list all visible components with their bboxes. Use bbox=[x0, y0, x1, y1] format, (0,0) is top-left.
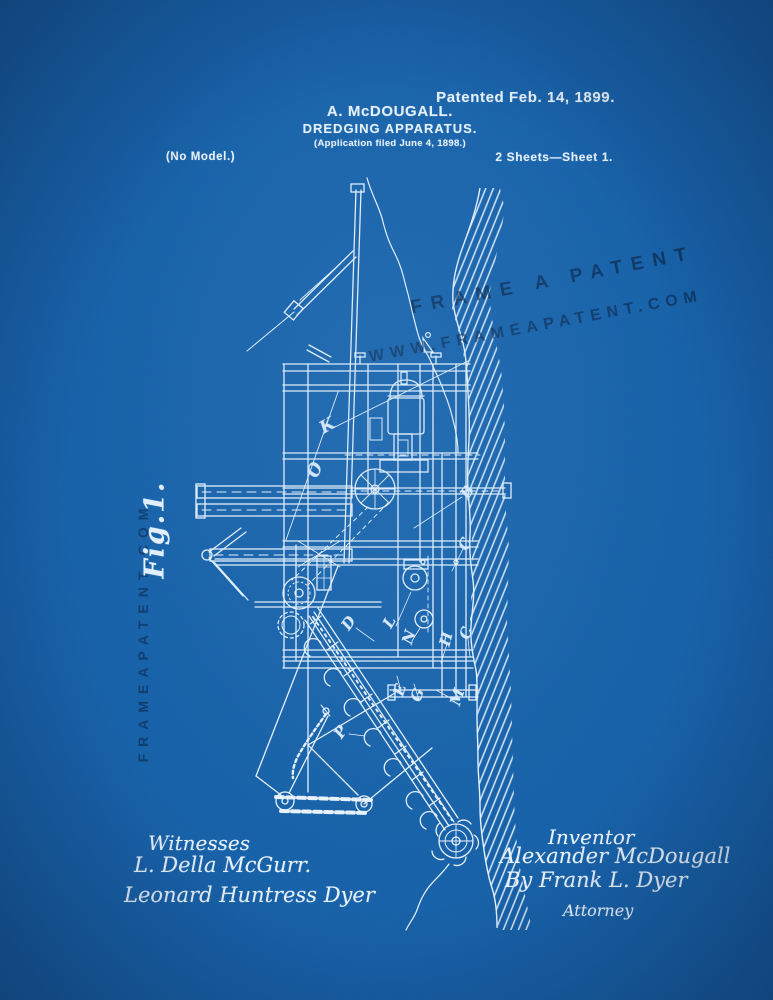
patent-print-page: Patented Feb. 14, 1899. A. McDOUGALL. DR… bbox=[0, 0, 773, 1000]
attorney-heading: Attorney bbox=[563, 901, 633, 920]
sheet-count: 2 Sheets—Sheet 1. bbox=[495, 150, 613, 164]
attorney-signature: By Frank L. Dyer bbox=[505, 868, 688, 892]
application-line: (Application filed June 4, 1898.) bbox=[270, 138, 510, 149]
inventor-signature: Alexander McDougall bbox=[500, 844, 730, 868]
figure-label: Fig.1. bbox=[140, 483, 171, 579]
inventor-name-heading: A. McDOUGALL. bbox=[280, 103, 500, 120]
witness-signature-1: L. Della McGurr. bbox=[134, 853, 311, 877]
no-model-note: (No Model.) bbox=[166, 151, 235, 163]
patent-title: DREDGING APPARATUS. bbox=[270, 121, 510, 136]
witnesses-heading: Witnesses bbox=[148, 831, 250, 855]
witness-signature-2: Leonard Huntress Dyer bbox=[124, 883, 375, 907]
